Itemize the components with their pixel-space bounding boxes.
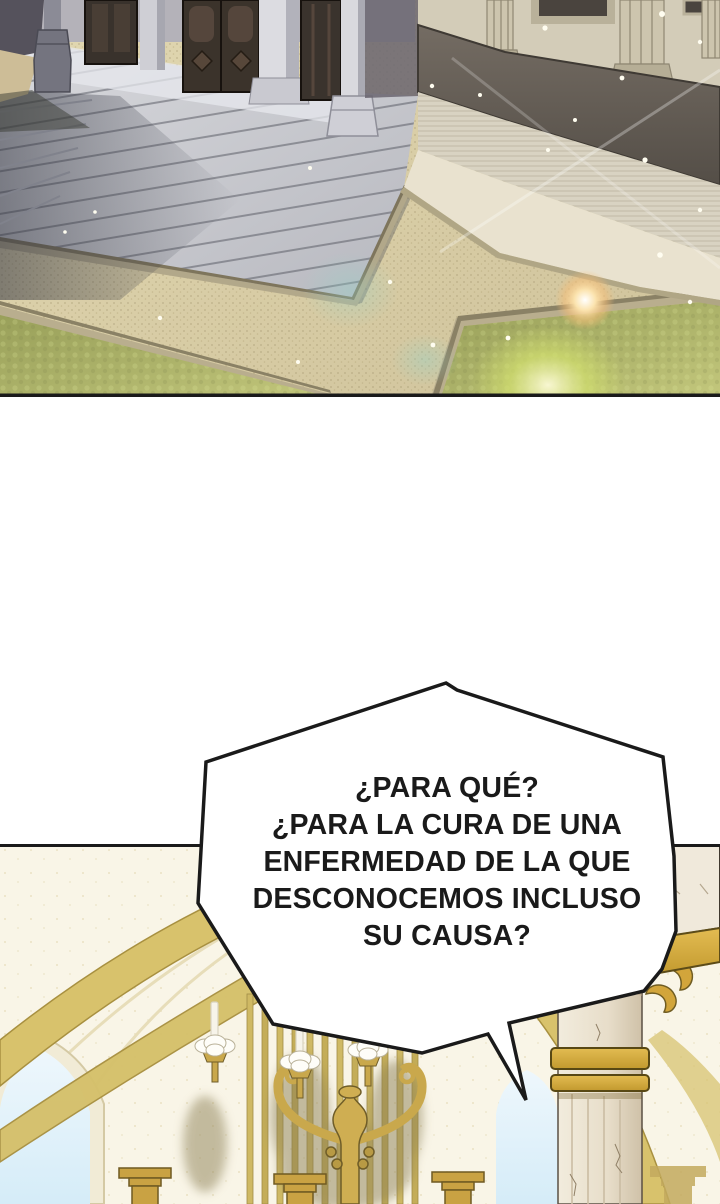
speech-line: DESCONOCEMOS INCLUSO [212, 881, 682, 918]
panel-border [0, 394, 720, 398]
comic-page: ¿PARA QUÉ? ¿PARA LA CURA DE UNA ENFERMED… [0, 0, 720, 1204]
speech-bubble-text: ¿PARA QUÉ? ¿PARA LA CURA DE UNA ENFERMED… [212, 770, 682, 955]
exterior-illustration [0, 0, 720, 397]
door-left [85, 0, 137, 64]
speech-line: SU CAUSA? [212, 918, 682, 955]
panel-exterior [0, 0, 720, 397]
window-center [496, 1070, 558, 1204]
door-center [183, 0, 259, 92]
speech-line: ENFERMEDAD DE LA QUE [212, 844, 682, 881]
door-right [301, 0, 341, 100]
speech-line: ¿PARA LA CURA DE UNA [212, 807, 682, 844]
speech-line: ¿PARA QUÉ? [212, 770, 682, 807]
